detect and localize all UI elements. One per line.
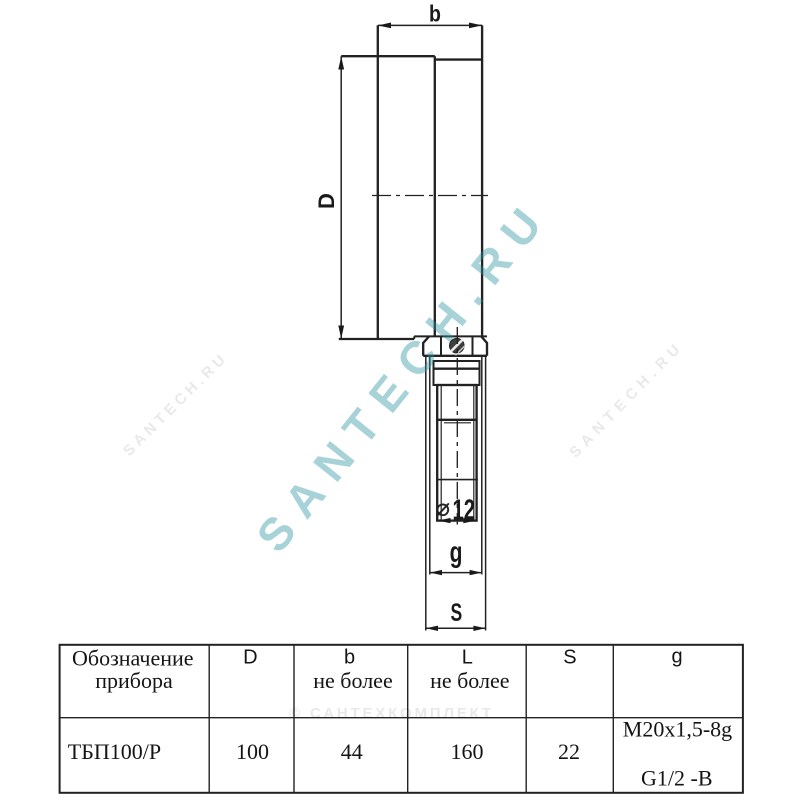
svg-text:22: 22 bbox=[558, 739, 580, 764]
svg-text:не более: не более bbox=[430, 668, 509, 693]
svg-text:M20x1,5-8g: M20x1,5-8g bbox=[623, 717, 732, 742]
svg-text:S: S bbox=[563, 647, 576, 669]
svg-text:G1/2 -B: G1/2 -B bbox=[641, 766, 713, 791]
svg-text:g: g bbox=[450, 537, 463, 569]
svg-text:160: 160 bbox=[451, 739, 484, 764]
svg-text:L: L bbox=[462, 647, 473, 669]
svg-text:100: 100 bbox=[236, 739, 269, 764]
svg-text:не более: не более bbox=[313, 668, 392, 693]
svg-text:ТБП100/Р: ТБП100/Р bbox=[68, 739, 161, 764]
svg-text:g: g bbox=[672, 646, 683, 668]
svg-text:S: S bbox=[450, 598, 462, 627]
svg-text:44: 44 bbox=[341, 739, 363, 764]
svg-text:D: D bbox=[243, 647, 257, 669]
svg-text:прибора: прибора bbox=[95, 668, 173, 693]
svg-text:D: D bbox=[314, 193, 339, 209]
svg-text:b: b bbox=[344, 647, 355, 669]
svg-text:Обозначение: Обозначение bbox=[72, 646, 194, 671]
svg-text:© САНТЕХКОМПЛЕКТ: © САНТЕХКОМПЛЕКТ bbox=[289, 705, 494, 722]
svg-text:b: b bbox=[429, 1, 441, 27]
